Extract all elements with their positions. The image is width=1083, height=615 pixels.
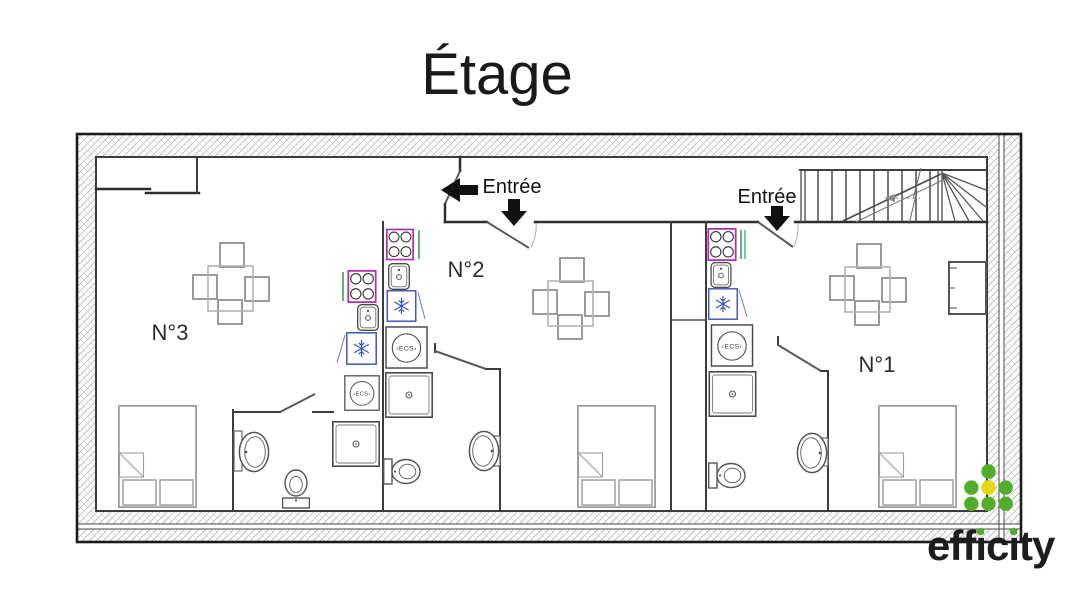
page-title: Étage	[421, 42, 573, 107]
logo-text: efficity	[927, 522, 1056, 569]
logo-dot	[999, 480, 1013, 494]
bed-n3	[119, 406, 196, 507]
logo-dot	[964, 497, 978, 511]
unit-label-n1: N°1	[859, 352, 896, 377]
bed-n2	[578, 406, 655, 507]
logo-i-dot	[977, 528, 984, 535]
entrance-label-1: Entrée	[483, 176, 542, 198]
logo-dot-yellow	[981, 480, 995, 494]
entrance-label-2: Entrée	[738, 186, 797, 208]
logo-dot	[999, 497, 1013, 511]
logo-dot	[964, 480, 978, 494]
logo-dot	[981, 497, 995, 511]
floor-plan-canvas: ‹ECS›	[0, 0, 1083, 615]
unit-label-n3: N°3	[152, 320, 189, 345]
bed-n1	[879, 406, 956, 507]
window	[949, 262, 986, 314]
logo-dot	[981, 464, 995, 478]
logo-i-dot	[1010, 528, 1017, 535]
unit-label-n2: N°2	[448, 257, 485, 282]
